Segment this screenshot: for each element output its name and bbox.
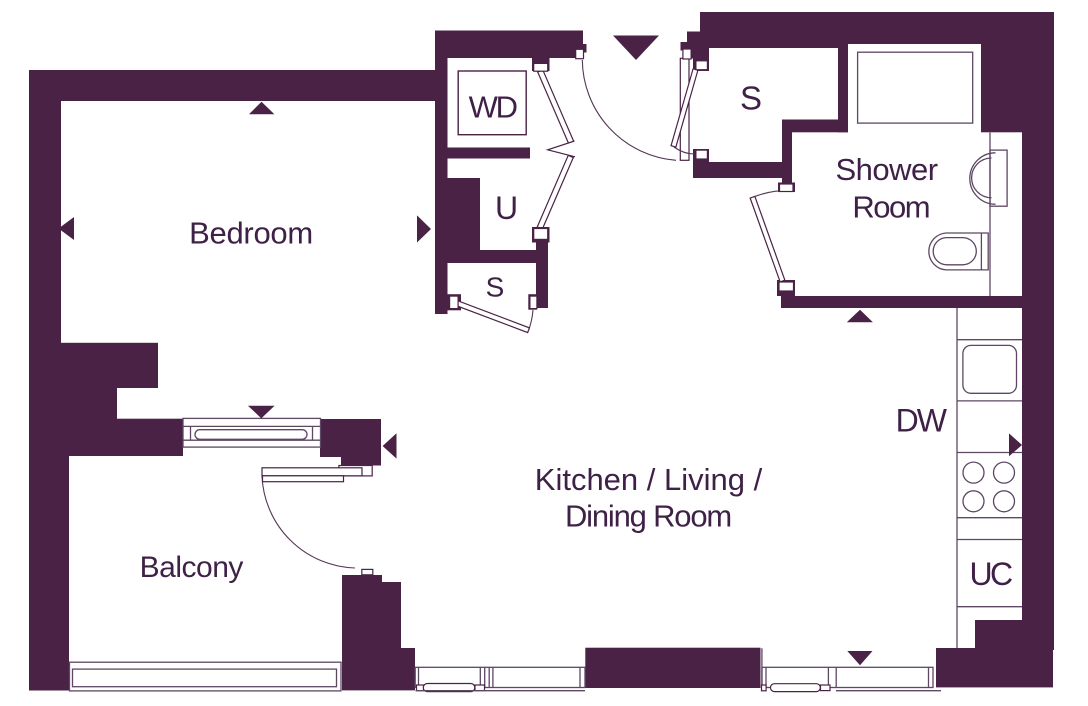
svg-text:S: S bbox=[486, 272, 505, 303]
svg-text:Bedroom: Bedroom bbox=[189, 216, 313, 251]
svg-text:Balcony: Balcony bbox=[140, 551, 244, 584]
svg-text:S: S bbox=[740, 79, 762, 116]
svg-text:Dining Room: Dining Room bbox=[565, 499, 731, 534]
svg-text:U: U bbox=[495, 190, 518, 226]
svg-text:Shower: Shower bbox=[835, 152, 937, 187]
svg-text:UC: UC bbox=[969, 556, 1012, 592]
svg-text:Room: Room bbox=[852, 190, 929, 225]
svg-text:DW: DW bbox=[896, 403, 948, 439]
svg-text:WD: WD bbox=[469, 90, 517, 125]
svg-text:Kitchen / Living /: Kitchen / Living / bbox=[535, 462, 763, 497]
